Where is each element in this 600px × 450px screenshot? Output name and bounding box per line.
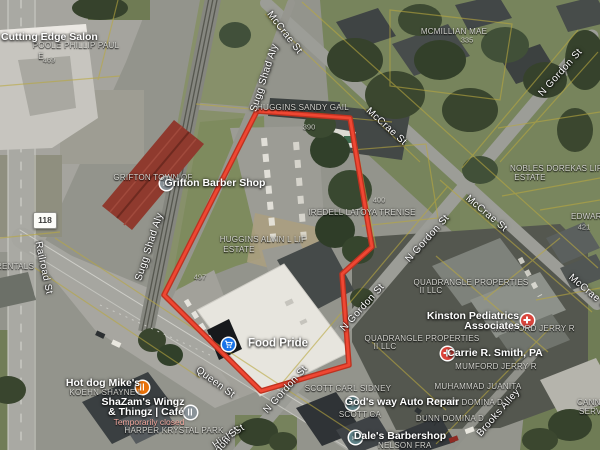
food-pride-marker[interactable] [222, 338, 235, 351]
parcel-label-rentals: RENTALS [0, 263, 34, 271]
route-118-badge: 118 [33, 212, 57, 229]
parcel-label-quadrangle-properties: QUADRANGLE PROPERTIES [414, 279, 529, 287]
poi-label-kinston-pediatrics[interactable]: Kinston Pediatrics [427, 311, 519, 322]
street-label-queen-st: Queen St [194, 366, 237, 401]
parcel-label-mcmillian-mae: MCMILLIAN MAE [421, 28, 487, 36]
parcel-label-muhammad-juanita: MUHAMMAD JUANITA [435, 383, 522, 391]
wrench-icon [349, 400, 356, 407]
parcel-label-mumford-jerry-r: MUMFORD JERRY R [493, 325, 575, 333]
parcel-label-harper-krystal-park: HARPER KRYSTAL PARK [124, 427, 223, 435]
parcel-label-e: E [38, 53, 44, 61]
street-label-railroad-st: Railroad St [33, 241, 54, 296]
street-label-brooks-alley: Brooks Alley [476, 387, 523, 439]
parcel-label-cannon: CANNON [577, 399, 600, 407]
shazams-marker[interactable] [184, 406, 197, 419]
parcel-label-ii-llc: II LLC [420, 287, 443, 295]
poi-label-hot-dog-mike-s[interactable]: Hot dog Mike's [66, 378, 140, 389]
kinston-pediatrics-marker[interactable] [521, 314, 534, 327]
parcel-label-huggins-sandy-gail: HUGGINS SANDY GAIL [257, 104, 349, 112]
street-label-n-gordon-st: N Gordon St [537, 47, 585, 98]
street-label-n-gordon-st: N Gordon St [339, 282, 387, 333]
poi-label-dale-s-barbershop[interactable]: Dale's Barbershop [354, 431, 446, 442]
parcel-label-mumford-jerry-r: MUMFORD JERRY R [455, 363, 537, 371]
street-label-sugg-shad-aly: Sugg Shad Aly [134, 212, 165, 282]
poi-label-carrie-r-smith-pa[interactable]: Carrie R. Smith, PA [447, 348, 543, 359]
street-label-n-gordon-st: N Gordon St [262, 364, 310, 415]
street-label-sugg-shad-aly: Sugg Shad Aly [249, 43, 280, 113]
address-number-497: 497 [194, 273, 207, 281]
dining-icon [186, 408, 194, 416]
hot-dog-mikes-marker[interactable] [136, 381, 149, 394]
poi-label-associates[interactable]: Associates [464, 321, 519, 332]
medical-cross-icon [523, 316, 531, 324]
poi-label-temporarily-closed[interactable]: Temporarily closed [114, 418, 185, 427]
address-number-400: 400 [373, 196, 386, 204]
address-number-390: 390 [303, 123, 316, 131]
poi-label-thingz-caf[interactable]: & Thingz | Café [108, 407, 184, 418]
satellite-map[interactable]: ✂✂McCrae StMcCrae StMcCrae StMcCrae StN … [0, 0, 600, 450]
parcel-label-quadrangle-properties: QUADRANGLE PROPERTIES [365, 335, 480, 343]
parcel-label-nobles-dorekas-lif: NOBLES DOREKAS LIF [510, 165, 600, 173]
address-number-421: 421 [578, 223, 591, 231]
poi-label-grifton-barber-shop[interactable]: Grifton Barber Shop [165, 178, 266, 189]
address-number-335: 335 [461, 36, 474, 44]
address-number-469: 469 [43, 56, 56, 64]
parcel-label-huggins-alvin-l-lif: HUGGINS ALVIN L LIF [220, 236, 307, 244]
map-labels-layer: ✂✂McCrae StMcCrae StMcCrae StMcCrae StN … [0, 0, 600, 450]
gods-way-marker[interactable] [346, 397, 359, 410]
street-label-mccrae-st: McCrae St [264, 10, 303, 56]
parcel-label-dunn-domina-d: DUNN DOMINA D [416, 415, 484, 423]
parcel-label-serv: SERV [579, 408, 600, 416]
carrie-smith-marker[interactable] [441, 347, 454, 360]
poi-label-god-s-way-auto-repair[interactable]: God's way Auto Repair [345, 397, 459, 408]
poi-label-shazam-s-wingz[interactable]: ShaZam's Wingz [102, 397, 185, 408]
parcel-label-ii-llc: II LLC [374, 343, 397, 351]
parcel-label-poole-phillip-paul: POOLE PHILLIP PAUL [33, 42, 119, 50]
poi-label-cutting-edge-salon[interactable]: Cutting Edge Salon [1, 32, 98, 43]
parcel-label-edwards: EDWARDS [571, 213, 600, 221]
parcel-label-scott-ca: SCOTT CA [339, 411, 381, 419]
parcel-label-koehn-shayne-l: KOEHN SHAYNE L [69, 389, 142, 397]
medical-cross-icon [443, 349, 451, 357]
street-label-mccrae-st: McCrae St [566, 273, 600, 313]
parcel-label-estate: ESTATE [223, 246, 254, 254]
dales-barbershop-marker[interactable]: ✂ [349, 431, 362, 444]
parcel-label-nelson-fra: NELSON FRA [378, 442, 432, 450]
street-label-mccrae-st: McCrae St [463, 194, 508, 234]
street-label-mccrae-st: McCrae St [364, 106, 408, 147]
parcel-label-dunn-domina-d: DUNN DOMINA D [435, 399, 503, 407]
street-label-high-st: High St [211, 423, 246, 450]
parcel-label-grifton-town-of: GRIFTON TOWN OF [113, 174, 192, 182]
street-label-gordon-st: Gordon St [202, 425, 242, 450]
scissors-icon: ✂ [352, 428, 359, 446]
scissors-icon: ✂ [163, 174, 170, 192]
poi-label-food-pride[interactable]: Food Pride [248, 338, 308, 350]
dining-icon [138, 383, 146, 391]
cart-icon [224, 340, 233, 349]
parcel-label-scott-carl-sidney: SCOTT CARL SIDNEY [305, 385, 392, 393]
parcel-label-estate: ESTATE [514, 174, 545, 182]
grifton-barber-shop-marker[interactable]: ✂ [160, 177, 173, 190]
street-label-n-gordon-st: N Gordon St [404, 213, 452, 264]
parcel-label-iredell-latoya-trenise: IREDELL LATOYA TRENISE [308, 209, 415, 217]
